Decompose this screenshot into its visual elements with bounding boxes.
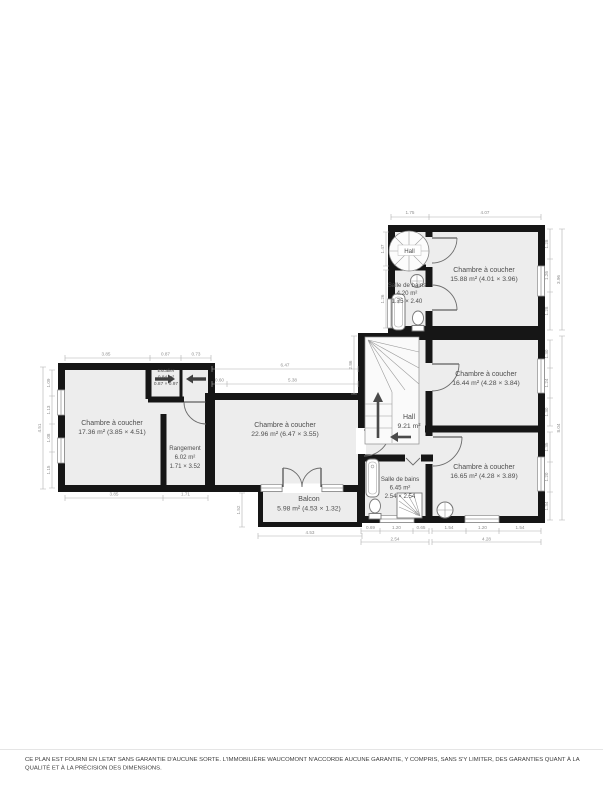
dimension-label: 1.26: [544, 271, 549, 280]
room-label-hall: Hall: [403, 414, 416, 421]
dimension-label: 0.69: [366, 525, 375, 530]
room-label-chambre3: Chambre à coucher: [453, 464, 515, 471]
room-area-rangement: 6.02 m²: [175, 454, 196, 461]
dimension-label: 1.24: [544, 378, 549, 387]
disclaimer: CE PLAN EST FOURNI EN LETAT SANS GARANTI…: [0, 750, 603, 772]
room-label-hall-upper: Hall: [404, 248, 415, 255]
room-detail-chambre1: 15.88 m² (4.01 × 3.96): [450, 276, 517, 283]
window: [322, 485, 343, 492]
dimension-label: 1.71: [181, 492, 190, 497]
dimension-label: 0.87: [161, 352, 170, 357]
dimension-label: 3.85: [102, 352, 111, 357]
room-dims-bain2: 2.54 × 2.54: [385, 493, 416, 500]
room-detail-chambre3: 16.65 m² (4.28 × 3.89): [450, 473, 517, 480]
dimension-label: 1.13: [46, 405, 51, 414]
room-detail-balcon: 5.98 m² (4.53 × 1.32): [277, 506, 341, 513]
disclaimer-line1: CE PLAN EST FOURNI EN LETAT SANS GARANTI…: [25, 756, 580, 763]
dimension-label: 0.65: [417, 525, 426, 530]
dimension-label: 2.54: [391, 537, 400, 542]
toilet-icon: [412, 311, 424, 331]
room-label-bain1: Salle de bains: [388, 282, 426, 289]
dimension-label: 2.86: [348, 360, 353, 369]
room-area-hall: 9.21 m²: [397, 423, 421, 430]
room-label-chambre4: Chambre à coucher: [81, 420, 143, 427]
disclaimer-line2: QUALITÉ ET À LA PRÉCISION DES DIMENSIONS…: [25, 765, 162, 772]
room-label-chambre5: Chambre à coucher: [254, 422, 316, 429]
room-label-chambre2: Chambre à coucher: [455, 371, 517, 378]
window: [538, 266, 545, 296]
dimension-label: 3.96: [556, 275, 561, 284]
dimension-label: 1.35: [544, 442, 549, 451]
dimension-label: 1.26: [380, 294, 385, 303]
dimension-label: 1.54: [516, 525, 525, 530]
bathtub-icon: [366, 459, 379, 497]
room-label-rangement: Rangement: [169, 445, 201, 452]
dimension-label: 1.28: [544, 306, 549, 315]
room-dims-escalier: 0.87 × 0.97: [154, 381, 178, 387]
dimension-label: 1.08: [46, 433, 51, 442]
dimension-label: 1.30: [544, 349, 549, 358]
dimension-label: 4.28: [482, 537, 491, 542]
dimension-label: 1.15: [46, 465, 51, 474]
dimension-label: 1.47: [380, 244, 385, 253]
dimension-label: 1.54: [445, 525, 454, 530]
dimension-label: 1.28: [544, 239, 549, 248]
dimension-label: 6.47: [281, 363, 290, 368]
dimension-label: 1.09: [46, 378, 51, 387]
dimension-label: 1.20: [544, 472, 549, 481]
room-label-balcon: Balcon: [298, 496, 320, 503]
dimension-label: 1.75: [406, 210, 415, 215]
room-detail-chambre5: 22.96 m² (6.47 × 3.55): [251, 431, 318, 438]
toilet-icon: [369, 499, 381, 519]
room-area-escalier: 0.84 m²: [158, 375, 175, 381]
room-label-bain2: Salle de bains: [381, 476, 419, 483]
room-label-chambre1: Chambre à coucher: [453, 267, 515, 274]
dimension-label: 1.52: [236, 505, 241, 514]
dimension-label: 5.38: [288, 378, 297, 383]
sink-icon: [437, 502, 453, 518]
window: [58, 390, 65, 415]
floor-plan: Chambre à coucher 15.88 m² (4.01 × 3.96)…: [0, 0, 603, 800]
dimension-label: 1.30: [544, 407, 549, 416]
dimension-label: 3.85: [110, 492, 119, 497]
room-detail-chambre4: 17.36 m² (3.85 × 4.51): [78, 429, 145, 436]
page: Chambre à coucher 15.88 m² (4.01 × 3.96)…: [0, 0, 603, 800]
room-area-bain2: 6.45 m²: [390, 485, 411, 492]
dimension-label: 1.20: [392, 525, 401, 530]
dimension-label: 1.20: [478, 525, 487, 530]
dimension-label: 0.73: [192, 352, 201, 357]
dimension-label: 4.51: [37, 423, 42, 432]
window: [261, 485, 282, 492]
dimension-label: 0.60: [215, 378, 224, 383]
room-label-escalier: Escalier: [157, 368, 174, 374]
room-dims-bain1: 1.75 × 2.40: [392, 298, 423, 305]
dimension-label: 1.34: [544, 501, 549, 510]
dimension-label: 8.04: [556, 423, 561, 432]
room-area-bain1: 4.20 m²: [397, 290, 418, 297]
window: [58, 438, 65, 463]
room-dims-rangement: 1.71 × 3.52: [170, 463, 201, 470]
dimension-label: 4.07: [481, 210, 490, 215]
dimension-label: 4.53: [306, 530, 315, 535]
window: [465, 516, 499, 523]
room-detail-chambre2: 16.44 m² (4.28 × 3.84): [452, 380, 519, 387]
